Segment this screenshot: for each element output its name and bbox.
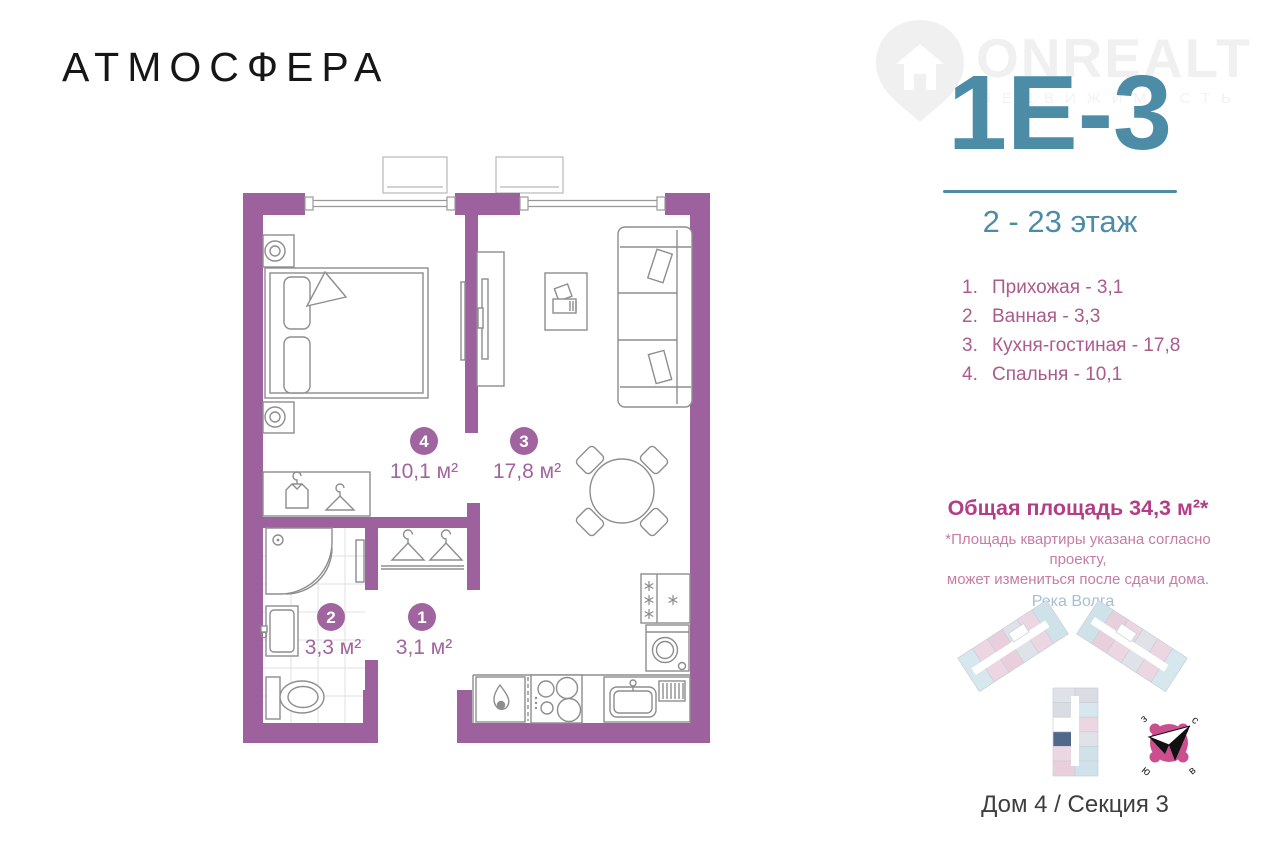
compass-south: ю bbox=[1139, 764, 1153, 778]
nightstand-bottom bbox=[263, 402, 294, 433]
unit-floors: 2 - 23 этаж bbox=[938, 204, 1182, 240]
dining-table bbox=[575, 445, 669, 537]
building-wing-bottom bbox=[1053, 688, 1098, 776]
legend-item-1: 1. Прихожая - 3,1 bbox=[962, 278, 1180, 298]
hob bbox=[531, 675, 582, 723]
flat-card: АТМОСФЕРА ONREALT НЕДВИЖИМОСТЬ 1Е-3 2 - … bbox=[0, 0, 1280, 854]
nightstand-top bbox=[263, 235, 294, 267]
total-area-note: *Площадь квартиры указана согласно проек… bbox=[918, 530, 1238, 590]
room-3-area: 17,8 м² bbox=[493, 460, 561, 483]
total-area-title: Общая площадь 34,3 м²* bbox=[923, 496, 1233, 521]
room-labels: 4 10,1 м² 3 17,8 м² 2 3,3 м² 1 3,1 м² bbox=[305, 427, 561, 659]
hallway-closet bbox=[381, 530, 464, 569]
svg-text:3: 3 bbox=[519, 432, 528, 451]
gas-heater bbox=[476, 677, 528, 722]
bathroom-shelf bbox=[356, 540, 364, 582]
compass-west: з bbox=[1138, 713, 1150, 725]
svg-text:4: 4 bbox=[419, 432, 429, 451]
building-section-label: Дом 4 / Секция 3 bbox=[938, 791, 1212, 819]
site-minimap: з с ю в bbox=[940, 598, 1200, 798]
sofa bbox=[618, 227, 692, 407]
room-4-area: 10,1 м² bbox=[390, 460, 458, 483]
unit-code: 1Е-3 bbox=[938, 58, 1182, 169]
pillow bbox=[284, 337, 310, 393]
room-2-area: 3,3 м² bbox=[305, 636, 361, 659]
svg-text:1: 1 bbox=[417, 608, 426, 627]
floorplan: 4 10,1 м² 3 17,8 м² 2 3,3 м² 1 3,1 м² bbox=[233, 145, 715, 750]
developer-logo: АТМОСФЕРА bbox=[62, 44, 389, 91]
legend-item-4: 4. Спальня - 10,1 bbox=[962, 365, 1180, 385]
unit-divider bbox=[943, 190, 1177, 193]
fridge bbox=[641, 574, 690, 623]
wardrobe bbox=[263, 472, 370, 516]
building-wing-right bbox=[1077, 600, 1188, 691]
legend-item-3: 3. Кухня-гостиная - 17,8 bbox=[962, 336, 1180, 356]
pillow bbox=[284, 277, 310, 329]
bed bbox=[265, 268, 428, 398]
bathroom-sink bbox=[261, 606, 298, 656]
svg-text:2: 2 bbox=[326, 608, 335, 627]
desk bbox=[545, 273, 587, 330]
balconies bbox=[383, 157, 563, 193]
compass-east: в bbox=[1186, 764, 1198, 777]
legend-item-2: 2. Ванная - 3,3 bbox=[962, 307, 1180, 327]
compass-north: с bbox=[1189, 714, 1200, 727]
hanger-icon bbox=[430, 530, 462, 560]
toilet bbox=[266, 677, 324, 719]
hanger-icon bbox=[392, 530, 424, 560]
washing-machine bbox=[646, 625, 689, 671]
compass-rose-icon: з с ю в bbox=[1138, 713, 1200, 779]
building-wing-left bbox=[958, 600, 1069, 691]
room-legend: 1. Прихожая - 3,1 2. Ванная - 3,3 3. Кух… bbox=[962, 278, 1180, 394]
room-1-area: 3,1 м² bbox=[396, 636, 452, 659]
kitchen-sink bbox=[604, 677, 690, 722]
